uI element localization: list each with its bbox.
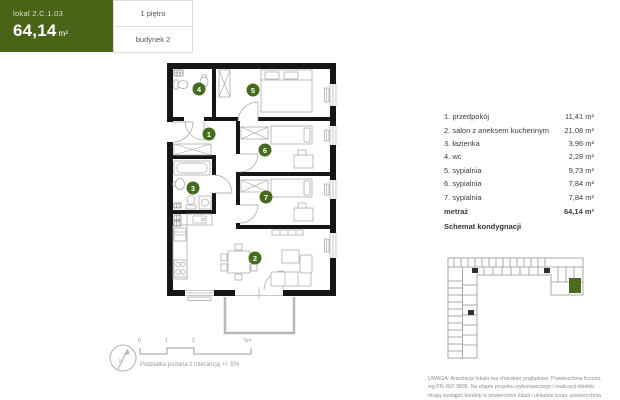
building-cell: budynek 2	[113, 26, 193, 53]
svg-text:N: N	[119, 359, 123, 365]
floor-plan-sheet: lokal 2.C.1.03 64,14m² 1 piętro budynek …	[0, 0, 620, 400]
building-schematic	[446, 252, 588, 362]
schematic-room-lines	[448, 258, 583, 351]
svg-text:0: 0	[138, 338, 141, 344]
room-row-5: 5. sypialnia9,73 m²	[444, 164, 594, 177]
total-area-row: metraż64,14 m²	[444, 205, 594, 218]
svg-text:2: 2	[253, 254, 257, 263]
room-row-7: 7. sypialnia7,84 m²	[444, 190, 594, 203]
room-number-badge-4: 4	[193, 83, 206, 96]
balcony	[225, 297, 294, 333]
svg-text:3: 3	[191, 184, 195, 193]
room-list: 1. przedpokój11,41 m² 2. salon z aneksem…	[444, 110, 594, 231]
schematic-unit-highlight	[569, 278, 581, 293]
svg-text:6: 6	[263, 146, 267, 155]
room-number-badge-1: 1	[203, 128, 216, 141]
room-row-3: 3. łazienka3,96 m²	[444, 137, 594, 150]
svg-text:1: 1	[207, 130, 211, 139]
room-number-badge-3: 3	[187, 182, 200, 195]
svg-text:2: 2	[192, 338, 195, 344]
room-number-badge-5: 5	[247, 84, 260, 97]
unit-id-label: lokal 2.C.1.03	[13, 9, 113, 18]
scale-bar: 0 1 2 5m	[138, 334, 264, 360]
disclaimer-note: UWAGA: Aranżacja lokalu ma charakter pog…	[428, 375, 616, 400]
svg-text:5m: 5m	[244, 338, 252, 344]
svg-text:7: 7	[264, 193, 268, 202]
room-number-badge-2: 2	[249, 252, 262, 265]
schematic-title: Schemat kondygnacji	[444, 222, 594, 231]
room-row-2: 2. salon z aneksem kuchennym21,08 m²	[444, 123, 594, 136]
floor-plan: 1 2 3 4 5 6 7	[160, 56, 346, 344]
svg-text:1: 1	[165, 338, 168, 344]
svg-text:5: 5	[251, 86, 255, 95]
room-number-badge-6: 6	[259, 144, 272, 157]
room-row-6: 6. sypialnia7,84 m²	[444, 177, 594, 190]
compass-icon: N	[106, 342, 140, 376]
floor-cell: 1 piętro	[113, 0, 193, 27]
scale-tolerance-note: Podziałka podana z tolerancją +/- 5%	[140, 362, 239, 368]
unit-header: lokal 2.C.1.03 64,14m²	[0, 0, 113, 52]
unit-area: 64,14m²	[13, 21, 113, 41]
unit-meta-cells: 1 piętro budynek 2	[113, 0, 193, 53]
room-number-badge-7: 7	[260, 191, 273, 204]
room-row-4: 4. wc2,28 m²	[444, 150, 594, 163]
room-row-1: 1. przedpokój11,41 m²	[444, 110, 594, 123]
